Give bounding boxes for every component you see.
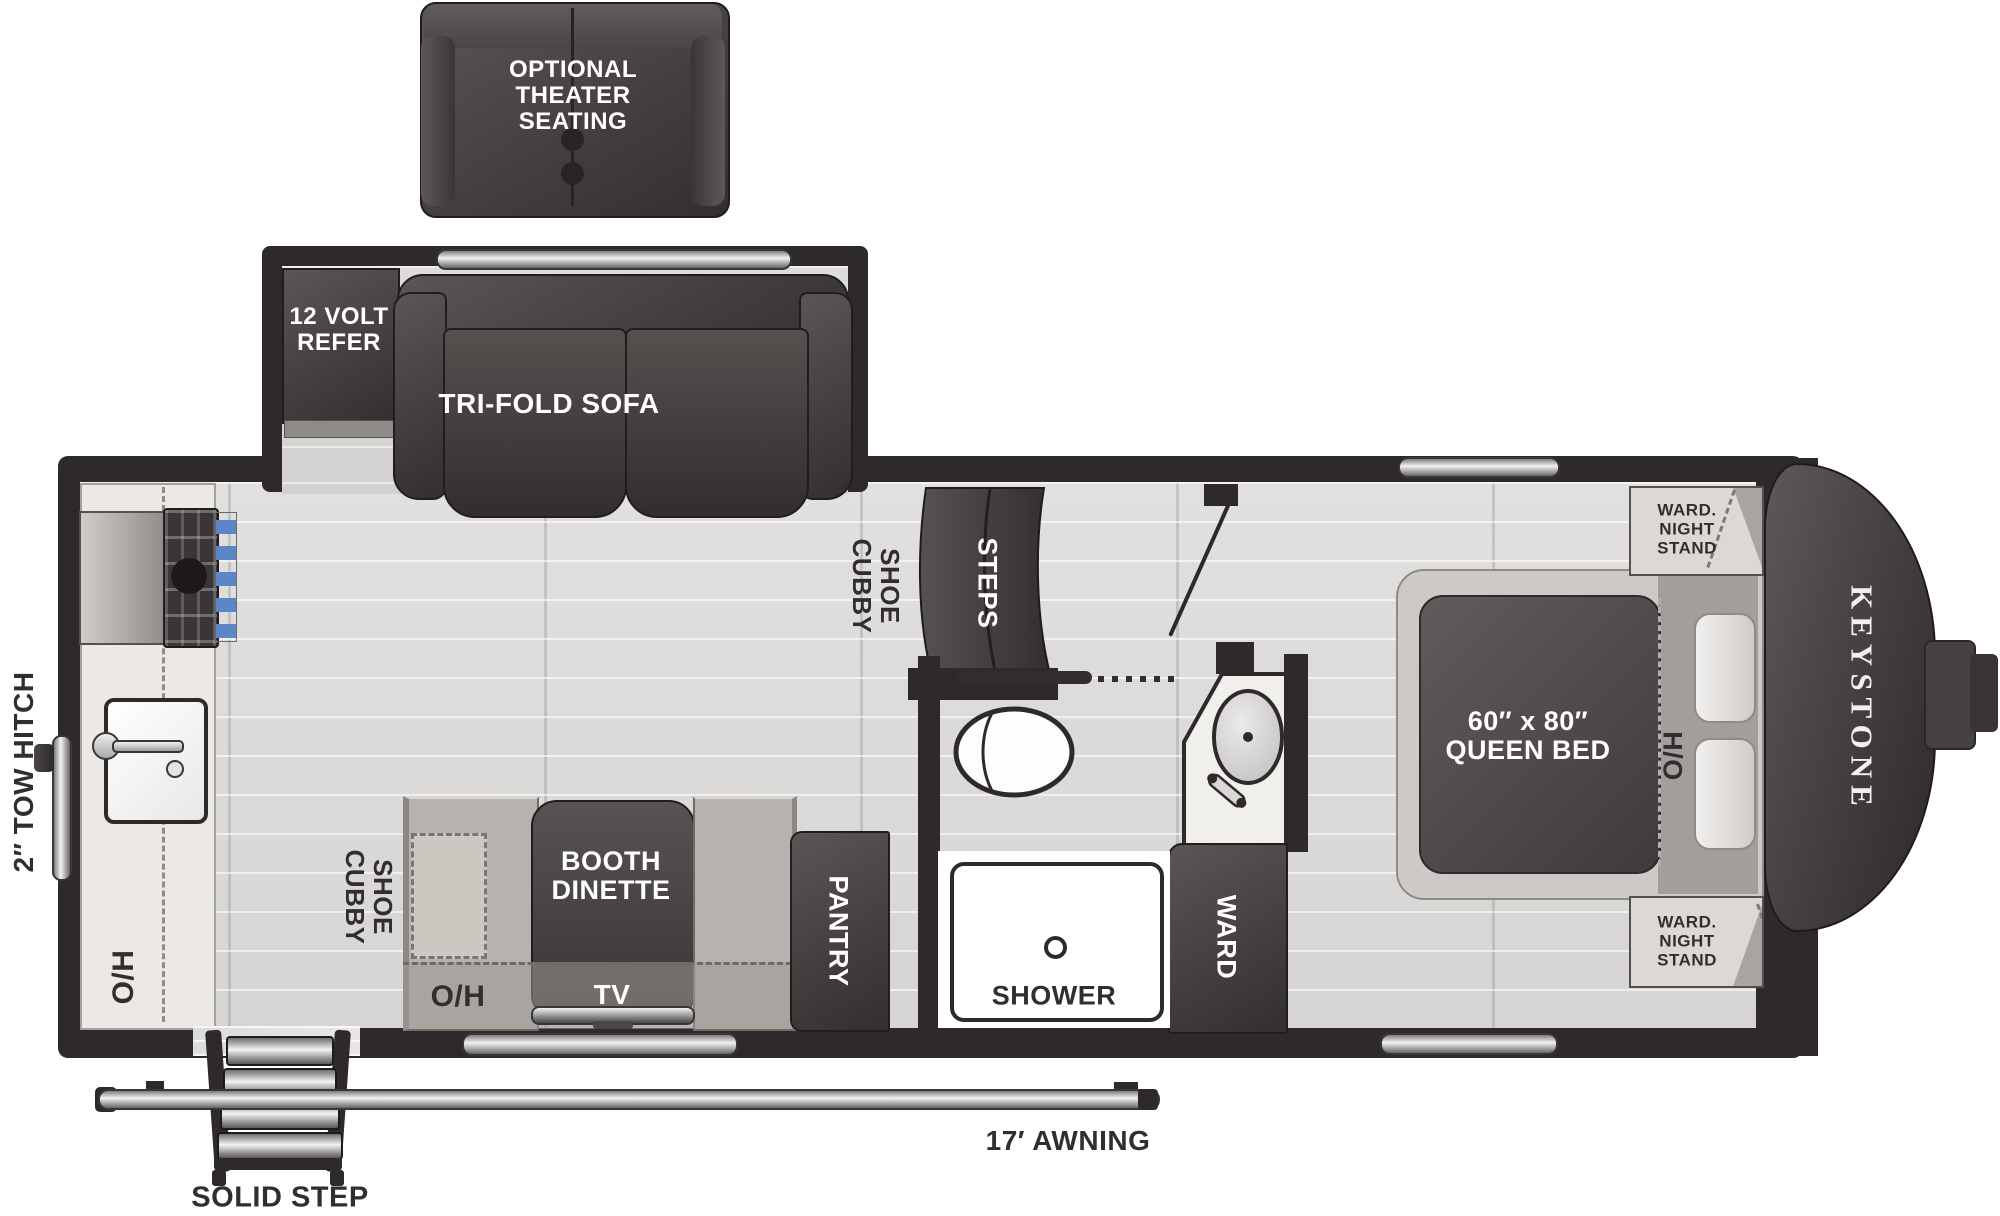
awning-label: 17′ AWNING — [986, 1126, 1151, 1156]
kitchen-faucet-bar — [112, 740, 184, 753]
bedroom-door-hinge — [1204, 484, 1238, 506]
dinette-bottom-window — [462, 1033, 738, 1056]
kitchen-soap-dot — [166, 760, 184, 778]
bathroom-sliding-door — [958, 671, 1092, 684]
bed-pillow-top — [1694, 613, 1756, 723]
dinette-overhead-label: O/H — [431, 981, 486, 1013]
wardrobe-label: WARD — [1211, 895, 1240, 980]
queen-bed-label: 60″ x 80″ QUEEN BED — [1445, 707, 1610, 765]
theater-seating-arm-left — [421, 36, 455, 206]
slideout-window — [436, 249, 792, 270]
shower-label: SHOWER — [992, 981, 1117, 1010]
refer-label: 12 VOLT REFER — [289, 304, 388, 356]
nightstand-front-label: WARD. NIGHT STAND — [1657, 500, 1717, 557]
theater-seating-label: OPTIONAL THEATER SEATING — [509, 57, 637, 135]
steps-label: STEPS — [972, 537, 1001, 628]
brand-label: KEYSTONE — [1845, 585, 1878, 813]
rear-window — [52, 735, 72, 881]
shoe-cubby-entry-label: SHOE CUBBY — [848, 539, 904, 634]
kitchen-sink — [104, 698, 208, 824]
floor-plan: 12 VOLT REFER TRI-FOLD SOFA OPTIONAL THE… — [0, 0, 2000, 1216]
tv-stand — [593, 1021, 633, 1029]
theater-cupholder-2 — [561, 162, 584, 185]
bathroom-corner-sink — [1178, 642, 1308, 852]
nightstand-rear-label: WARD. NIGHT STAND — [1657, 912, 1717, 969]
bedroom-bottom-window — [1380, 1033, 1558, 1055]
toilet — [950, 704, 1078, 800]
bed-pillow-bottom — [1694, 738, 1756, 850]
sofa-label: TRI-FOLD SOFA — [438, 389, 659, 419]
sofa-cushion-left — [443, 328, 627, 518]
awning-roller — [98, 1089, 1160, 1110]
bedroom-top-window — [1398, 457, 1560, 478]
range-body — [79, 511, 167, 645]
awning-right-cap — [1138, 1089, 1158, 1110]
kingpin-hitch-outer — [1924, 640, 1976, 750]
bathroom-door-track-dots — [1098, 676, 1182, 682]
kingpin-hitch-inner — [1970, 654, 1998, 732]
headboard-overhead-label: H/O — [1657, 731, 1686, 781]
solid-step-label: SOLID STEP — [191, 1182, 368, 1213]
sofa-cushion-right — [625, 328, 809, 518]
range-knob-strip — [215, 512, 237, 642]
refrigerator-base — [284, 420, 398, 438]
dinette-bench-left-storage — [411, 833, 487, 959]
kitchen-overhead-label: O/H — [108, 950, 140, 1005]
solid-step-tread-1 — [226, 1036, 334, 1066]
bathroom-wall-left — [918, 656, 940, 1030]
range-burner — [171, 558, 207, 594]
theater-seating-arm-right — [691, 36, 725, 206]
booth-dinette-label: BOOTH DINETTE — [551, 847, 670, 905]
shoe-cubby-dinette-label: SHOE CUBBY — [341, 850, 397, 945]
solid-step-base — [214, 1158, 342, 1170]
shower-drain — [1044, 936, 1067, 959]
tv-label: TV — [594, 980, 631, 1010]
solid-step-tread-4 — [217, 1132, 343, 1160]
tow-hitch-label: 2″ TOW HITCH — [9, 672, 39, 873]
pantry-label: PANTRY — [823, 876, 852, 987]
